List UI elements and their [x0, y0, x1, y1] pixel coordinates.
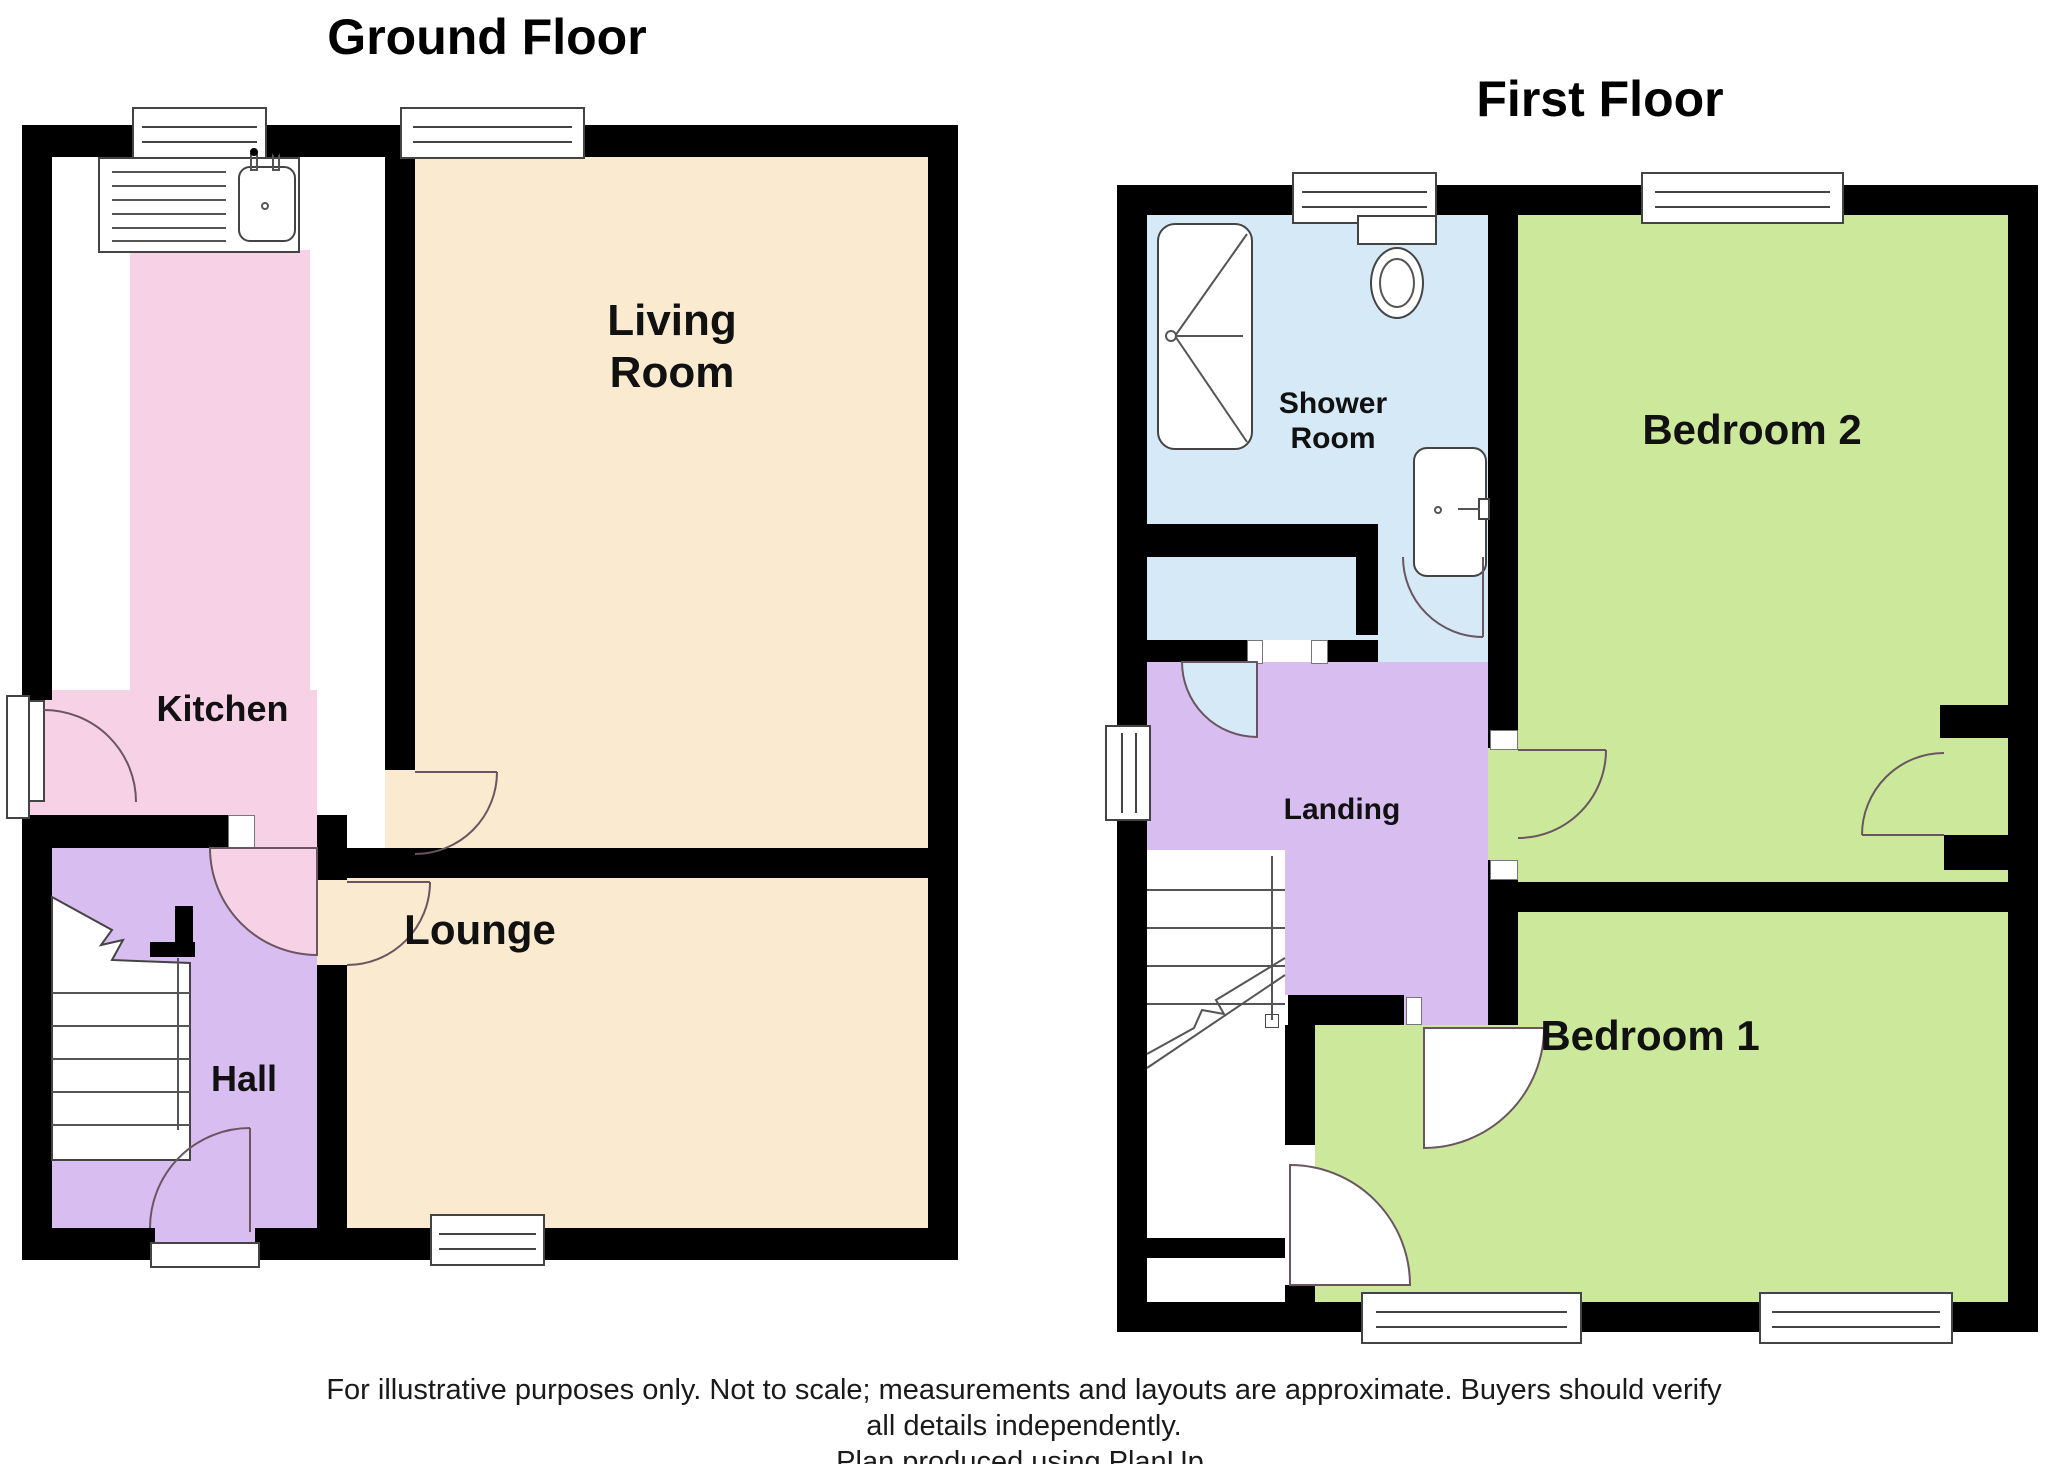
- label-kitchen: Kitchen: [120, 688, 325, 730]
- tap-dot: [272, 148, 280, 156]
- stair-cut-line: [1147, 975, 1285, 1068]
- door-arc-alcove: [1862, 753, 1944, 835]
- door-arc-cupboard: [1290, 1165, 1410, 1285]
- stairs-ground-floor: [52, 897, 190, 1160]
- sink-drainer-lines: [112, 154, 279, 241]
- door-swings-first: [1182, 557, 1944, 1285]
- label-lounge: Lounge: [330, 906, 630, 954]
- linework-layer: [0, 0, 2048, 1464]
- door-arc-shower: [1403, 557, 1483, 637]
- shower-fan-lines: [1166, 234, 1480, 513]
- door-arc-bedroom2: [1518, 750, 1606, 838]
- label-shower-room: Shower Room: [1258, 386, 1408, 456]
- disclaimer-text: For illustrative purposes only. Not to s…: [224, 1372, 1824, 1464]
- door-arc-vestibule: [1182, 662, 1257, 737]
- tap-dot: [250, 148, 258, 156]
- label-bedroom2: Bedroom 2: [1570, 406, 1934, 454]
- label-living-room: Living Room: [587, 295, 757, 399]
- door-arc-kitchen-living: [415, 772, 497, 854]
- label-bedroom1: Bedroom 1: [1468, 1012, 1832, 1060]
- label-hall: Hall: [164, 1058, 324, 1100]
- stair-treads-first: [1147, 856, 1285, 1068]
- stair-cut-line: [1147, 958, 1285, 1054]
- disclaimer-line1: For illustrative purposes only. Not to s…: [224, 1372, 1824, 1408]
- label-landing: Landing: [1242, 793, 1442, 827]
- floorplan-canvas: Ground Floor First Floor: [0, 0, 2048, 1464]
- disclaimer-line3: Plan produced using PlanUp.: [224, 1444, 1824, 1464]
- disclaimer-line2: all details independently.: [224, 1408, 1824, 1444]
- door-arc-kitchen-hall: [210, 848, 317, 955]
